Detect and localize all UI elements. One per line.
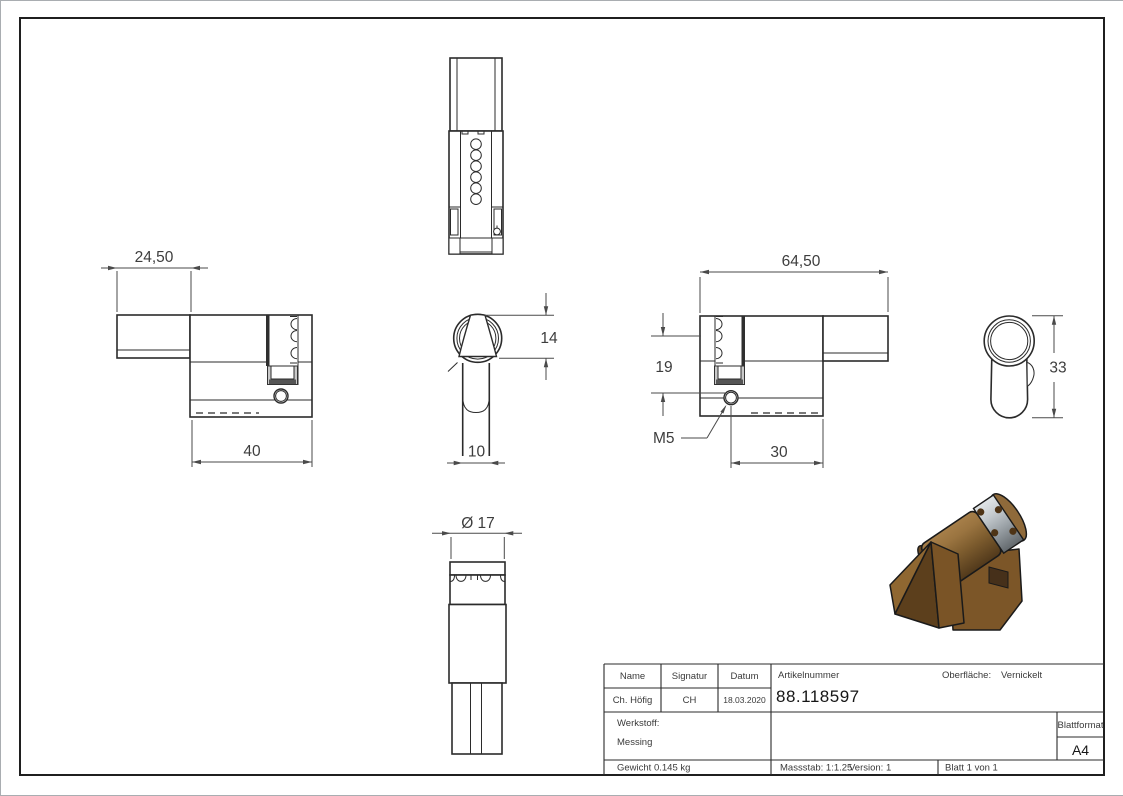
- dim-label: Ø 17: [461, 515, 495, 532]
- tb-blatt: Blatt 1 von 1: [945, 763, 998, 774]
- dimension-stem-width: 10: [447, 444, 505, 466]
- render-3d: [890, 488, 1033, 630]
- dim-label: 14: [540, 330, 558, 347]
- view-profile-end: 33: [984, 316, 1066, 418]
- tb-article-number: 88.118597: [776, 687, 860, 706]
- tb-value-signatur: CH: [683, 695, 697, 706]
- dimension-knob-diameter: Ø 17: [432, 515, 522, 559]
- dim-label: 40: [243, 443, 261, 460]
- tb-value-name: Ch. Höfig: [613, 695, 653, 706]
- view-top: [449, 58, 503, 254]
- pin-channel-wall: [742, 316, 746, 367]
- screw-detail: [494, 228, 501, 235]
- tb-value-datum: 18.03.2020: [723, 695, 766, 705]
- view-side-right: 64,50 19 M5 30: [651, 253, 888, 468]
- tb-header-name: Name: [620, 671, 645, 682]
- sheet-frame: [20, 18, 1104, 775]
- dimension-knob-length: 24,50: [101, 249, 208, 312]
- dim-label: 24,50: [135, 249, 174, 266]
- tb-massstab: Massstab: 1:1.25: [780, 763, 852, 774]
- dim-label: 30: [770, 444, 788, 461]
- screw-hole: [274, 389, 288, 403]
- tb-header-datum: Datum: [731, 671, 759, 682]
- tb-header-oberflaeche: Oberfläche:: [942, 670, 991, 681]
- dim-label: M5: [653, 430, 675, 447]
- profile-tab: [1028, 363, 1034, 387]
- tb-header-artikelnummer: Artikelnummer: [778, 670, 839, 681]
- dim-label: 19: [655, 359, 672, 376]
- tb-value-oberflaeche: Vernickelt: [1001, 670, 1043, 681]
- render-thumb-wedge: [890, 542, 964, 628]
- dim-label: 33: [1049, 360, 1066, 377]
- dimension-profile-height: 33: [1032, 316, 1067, 418]
- dimension-body-length: 40: [192, 420, 312, 467]
- view-bottom: Ø 17: [432, 515, 522, 754]
- view-knob-end: 14 10: [447, 293, 558, 465]
- tb-value-blattformat: A4: [1072, 742, 1089, 758]
- dimension-total-length: 64,50: [700, 253, 888, 313]
- tb-version: Version: 1: [849, 763, 891, 774]
- view-side-left: 24,50 40: [101, 249, 312, 467]
- title-block: Name Signatur Datum Ch. Höfig CH 18.03.2…: [604, 664, 1104, 775]
- tb-value-werkstoff: Messing: [617, 737, 652, 748]
- tb-gewicht: Gewicht 0.145 kg: [617, 763, 690, 774]
- dim-label: 64,50: [782, 253, 821, 270]
- tb-header-werkstoff: Werkstoff:: [617, 718, 659, 729]
- drawing-sheet: 24,50 40 14: [0, 0, 1123, 796]
- tb-header-blattformat: Blattformat: [1058, 720, 1104, 731]
- pin-channel-wall: [266, 315, 270, 366]
- dim-label: 10: [468, 444, 486, 461]
- drawing-canvas: 24,50 40 14: [1, 1, 1123, 795]
- tb-header-signatur: Signatur: [672, 671, 707, 682]
